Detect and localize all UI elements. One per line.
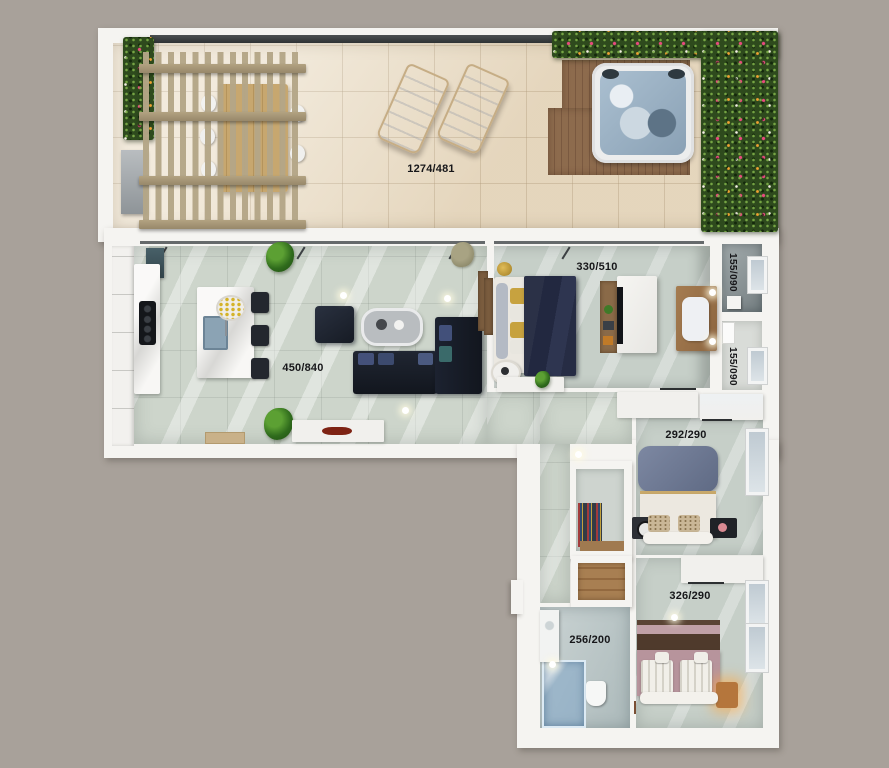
patterned-pillow: [678, 515, 700, 532]
terrace-dimension-label: 1274/481: [395, 163, 467, 175]
window: [746, 624, 768, 672]
closet-wood-base: [580, 541, 624, 551]
wall-notch: [511, 580, 523, 614]
shower-enclosure: [542, 660, 586, 728]
floor-plan: 1274/481 155/090 155/090: [0, 0, 889, 768]
sofa-pillow: [418, 353, 433, 365]
low-dresser: [497, 377, 564, 392]
window: [746, 581, 768, 628]
ceiling-light: [549, 661, 556, 668]
table-decor: [501, 367, 509, 375]
red-decor: [322, 427, 352, 435]
faucet: [225, 318, 227, 336]
door-threshold: [660, 388, 696, 390]
pergola-beam: [139, 220, 306, 229]
living-dimension-label: 450/840: [268, 362, 338, 374]
wardrobe: [681, 556, 763, 583]
sofa-pillow: [439, 325, 452, 341]
doormat: [205, 432, 245, 444]
kitchen-island: [197, 287, 254, 378]
bed-headboard-pillow: [638, 446, 718, 492]
hedge-right: [701, 31, 778, 232]
pergola-beam: [139, 112, 306, 121]
armchair: [315, 306, 354, 343]
bedroom-middle-dimension-label: 292/290: [651, 429, 721, 441]
shelf-box: [603, 321, 614, 330]
vanity-chair: [682, 297, 709, 341]
pillow: [680, 660, 712, 694]
pergola-beam: [139, 64, 306, 73]
master-bedroom-dimension-label: 330/510: [562, 261, 632, 273]
hot-tub-water: [600, 71, 686, 155]
pillow: [641, 660, 673, 694]
flower-decor: [718, 523, 727, 532]
sliding-glass-wall: [494, 241, 704, 244]
gold-stool: [497, 262, 512, 276]
bar-stool: [251, 292, 269, 313]
bedroom-wall-shelf: [484, 278, 493, 335]
navy-blanket: [524, 276, 576, 376]
divider-wood-shelf: [600, 281, 617, 353]
window: [748, 348, 767, 384]
small-pillow: [694, 652, 708, 663]
bolster-pillow: [496, 283, 508, 359]
nightstand: [710, 518, 737, 538]
tv-screen: [617, 287, 623, 344]
passage-floor: [487, 392, 540, 444]
bed-headboard-brown-band: [637, 634, 720, 650]
shelf-plant: [604, 305, 613, 314]
sofa-pillow: [439, 346, 452, 362]
shelf-box-orange: [603, 336, 613, 345]
bed-headboard-mauve: [637, 625, 720, 634]
sofa-pillow: [378, 353, 394, 365]
wardrobe-nook-wood-shelves: [578, 563, 625, 600]
ceiling-light: [402, 407, 409, 414]
utility-bottom-dimension-label: 155/090: [727, 347, 738, 386]
patterned-pillow: [648, 515, 670, 532]
hallway-floor: [540, 444, 570, 603]
ceiling-light: [575, 451, 582, 458]
built-in-wardrobe: [617, 392, 698, 418]
sliding-glass-wall: [140, 241, 485, 244]
utility-door: [722, 322, 735, 344]
hot-tub: [592, 63, 694, 163]
built-in-wardrobe: [700, 394, 763, 420]
vanity-table: [676, 286, 717, 351]
utility-top-dimension-label: 155/090: [727, 253, 738, 292]
tv-console: [292, 420, 384, 442]
bathroom-dimension-label: 256/200: [555, 634, 625, 646]
bar-stool: [251, 358, 269, 379]
toilet: [586, 681, 606, 706]
ceiling-light: [444, 295, 451, 302]
window: [748, 257, 767, 293]
duvet-roll: [643, 532, 713, 544]
window: [746, 429, 768, 495]
sofa-pillow: [358, 353, 374, 365]
door-threshold: [702, 419, 732, 421]
pergola-beam: [139, 176, 306, 185]
duvet-roll: [640, 692, 718, 704]
hot-tub-headrest: [602, 69, 619, 79]
table-decor: [376, 319, 387, 330]
fruit-bowl: [216, 295, 246, 321]
small-pillow: [655, 652, 669, 663]
ceiling-light: [340, 292, 347, 299]
bed-master: [494, 277, 576, 373]
ceiling-light: [671, 614, 678, 621]
pergola-slats: [143, 52, 303, 229]
nightstand-with-lamp: [716, 682, 738, 708]
bedroom-bottom-dimension-label: 326/290: [655, 590, 725, 602]
hot-tub-headrest: [668, 69, 685, 79]
wardrobe-edge-line: [688, 582, 724, 584]
coffee-table: [361, 308, 423, 346]
divider-wardrobe: [617, 276, 657, 353]
table-decor: [394, 320, 404, 330]
cooktop: [139, 301, 156, 345]
utility-fixture: [727, 296, 741, 309]
bar-stool: [251, 325, 269, 346]
wall-cabinet-strip: [112, 246, 134, 446]
dried-plant: [451, 242, 474, 267]
